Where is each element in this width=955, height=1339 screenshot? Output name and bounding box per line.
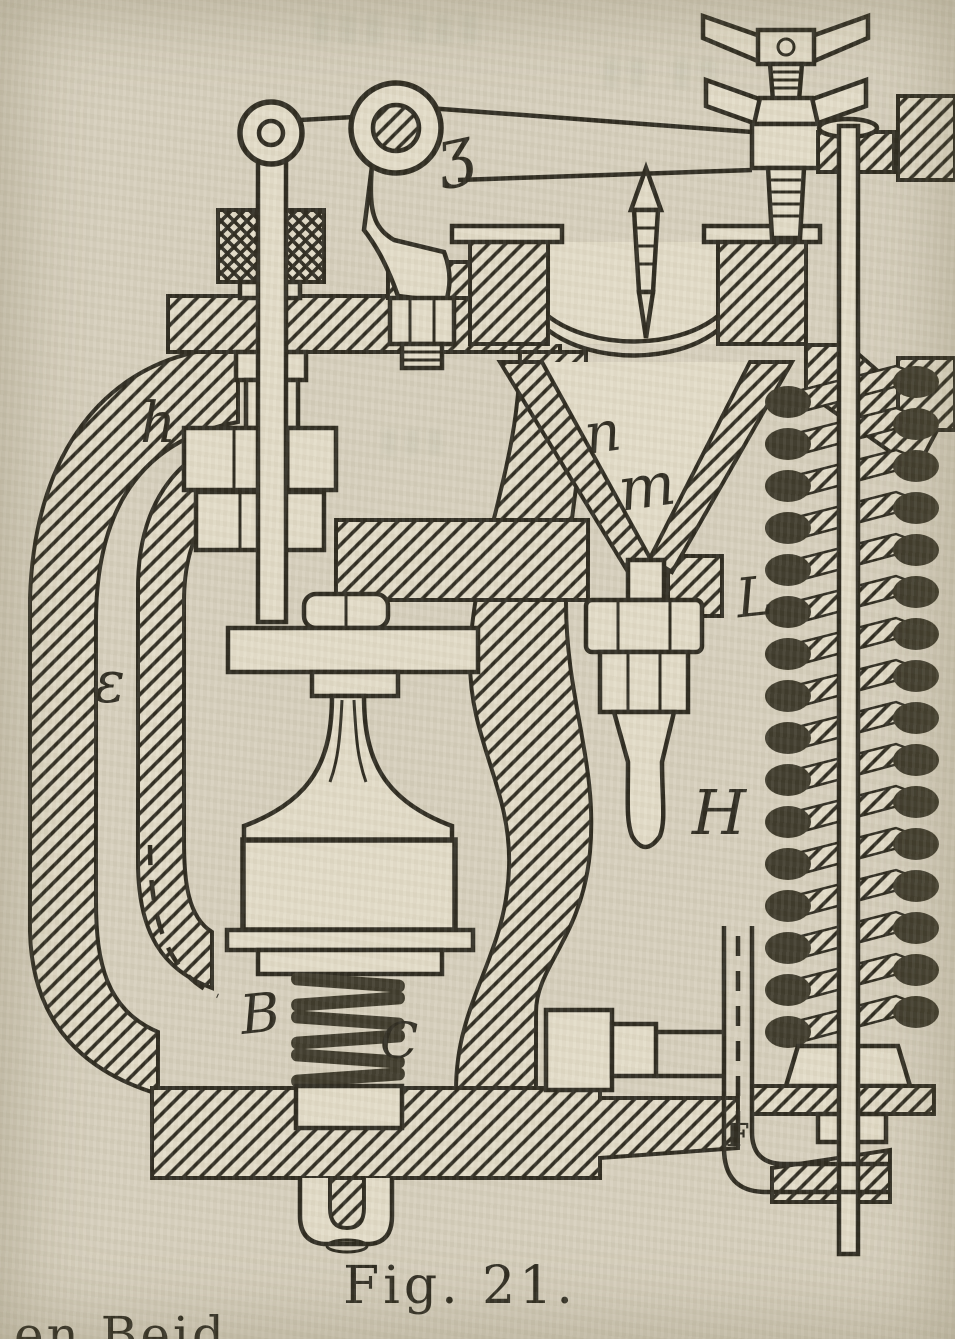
eye-rod-large-pin [373, 105, 419, 151]
pipe-union-large [546, 1010, 612, 1090]
lever-bottom-edge [458, 170, 752, 180]
wing-upper-left [703, 16, 760, 62]
label-b: B [236, 980, 283, 1047]
cup-wall-left [470, 240, 548, 344]
label-c: C [380, 1012, 418, 1070]
cup-rim-left [452, 226, 562, 242]
eye-rod-bent-body [364, 166, 450, 302]
label-h: h [140, 391, 176, 456]
needle-body [634, 210, 658, 292]
frame-corner-block [898, 96, 955, 180]
collar [754, 98, 818, 124]
label-z: ʒ [428, 112, 480, 192]
pipe-union-small [612, 1024, 656, 1076]
piston-collar [312, 672, 398, 696]
label-m: m [614, 448, 680, 525]
scanned-page: ▮▮▮ ▮▮▮ ▮▮ ▮▮ ▮▮▮ [0, 0, 955, 1339]
valve-stem [258, 160, 286, 622]
nozzle-spout [614, 712, 674, 847]
lever-top-edge [428, 108, 752, 132]
lever-link-line [300, 117, 354, 120]
wing-upper-right [812, 16, 868, 62]
threaded-stub [402, 344, 442, 368]
piston-block [243, 840, 455, 930]
drain-plug-core [330, 1178, 364, 1228]
union-nut [586, 600, 702, 652]
guide-block [752, 124, 820, 168]
cup-wall-right [718, 240, 806, 344]
reducer-fitting [600, 652, 688, 712]
eye-rod-small-hole [259, 121, 283, 145]
piston-flange-upper [227, 930, 473, 950]
support-beam [336, 520, 588, 600]
label-h2: H [691, 776, 748, 849]
spring-guide-rod [839, 126, 858, 1254]
label-l: L [732, 564, 775, 631]
spring-plug-block [296, 1086, 402, 1128]
label-e: ε [94, 648, 125, 716]
wing-nut-hub [758, 30, 814, 64]
piston-assembly [227, 594, 478, 1128]
label-f: F [726, 1116, 749, 1154]
piston-top-plate [228, 628, 478, 672]
threaded-shaft-upper [770, 64, 802, 100]
piston-flange-lower [258, 950, 442, 974]
piston-stem-trumpet [244, 696, 452, 840]
funnel-throat [628, 560, 664, 600]
base-plate [152, 1088, 738, 1178]
adjuster-nut [390, 298, 454, 344]
page-text-cutoff: en Beid [14, 1306, 227, 1339]
figure-drawing: ʒ h ε n m L H B C F [0, 0, 955, 1339]
